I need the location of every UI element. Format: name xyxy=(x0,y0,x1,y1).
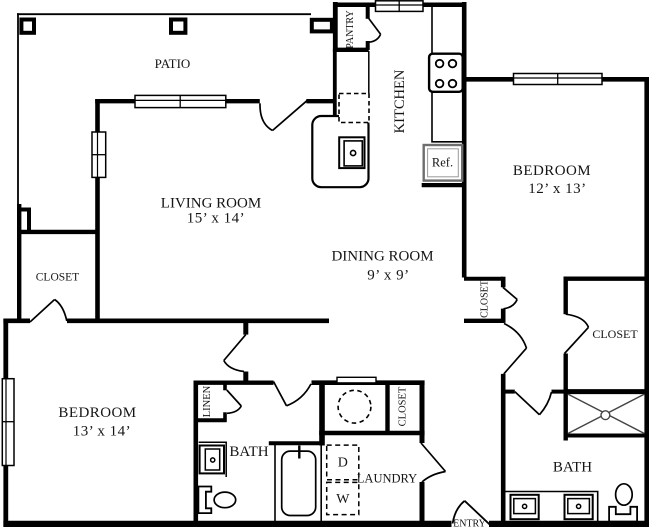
svg-text:12’ x 13’: 12’ x 13’ xyxy=(528,181,586,197)
svg-text:ENTRY: ENTRY xyxy=(453,519,486,527)
svg-text:LIVING ROOM: LIVING ROOM xyxy=(161,196,261,212)
svg-text:CLOSET: CLOSET xyxy=(36,272,79,284)
svg-text:PANTRY: PANTRY xyxy=(345,10,356,49)
svg-text:CLOSET: CLOSET xyxy=(398,386,409,426)
svg-text:13’ x 14’: 13’ x 14’ xyxy=(73,424,131,440)
svg-text:BEDROOM: BEDROOM xyxy=(513,163,591,179)
svg-text:CLOSET: CLOSET xyxy=(480,280,491,318)
svg-text:LAUNDRY: LAUNDRY xyxy=(357,472,417,486)
svg-text:KITCHEN: KITCHEN xyxy=(392,69,408,133)
svg-text:BEDROOM: BEDROOM xyxy=(58,405,136,421)
svg-text:BATH: BATH xyxy=(553,460,592,476)
svg-text:CLOSET: CLOSET xyxy=(592,327,638,341)
svg-text:9’ x 9’: 9’ x 9’ xyxy=(367,268,409,284)
svg-text:D: D xyxy=(338,456,348,471)
svg-text:DINING ROOM: DINING ROOM xyxy=(331,249,433,265)
svg-text:LINEN: LINEN xyxy=(202,385,213,417)
svg-text:Ref.: Ref. xyxy=(432,156,453,170)
svg-text:BATH: BATH xyxy=(229,444,268,460)
svg-text:15’ x 14’: 15’ x 14’ xyxy=(187,211,245,227)
svg-text:W: W xyxy=(336,492,350,507)
svg-text:PATIO: PATIO xyxy=(155,56,191,71)
